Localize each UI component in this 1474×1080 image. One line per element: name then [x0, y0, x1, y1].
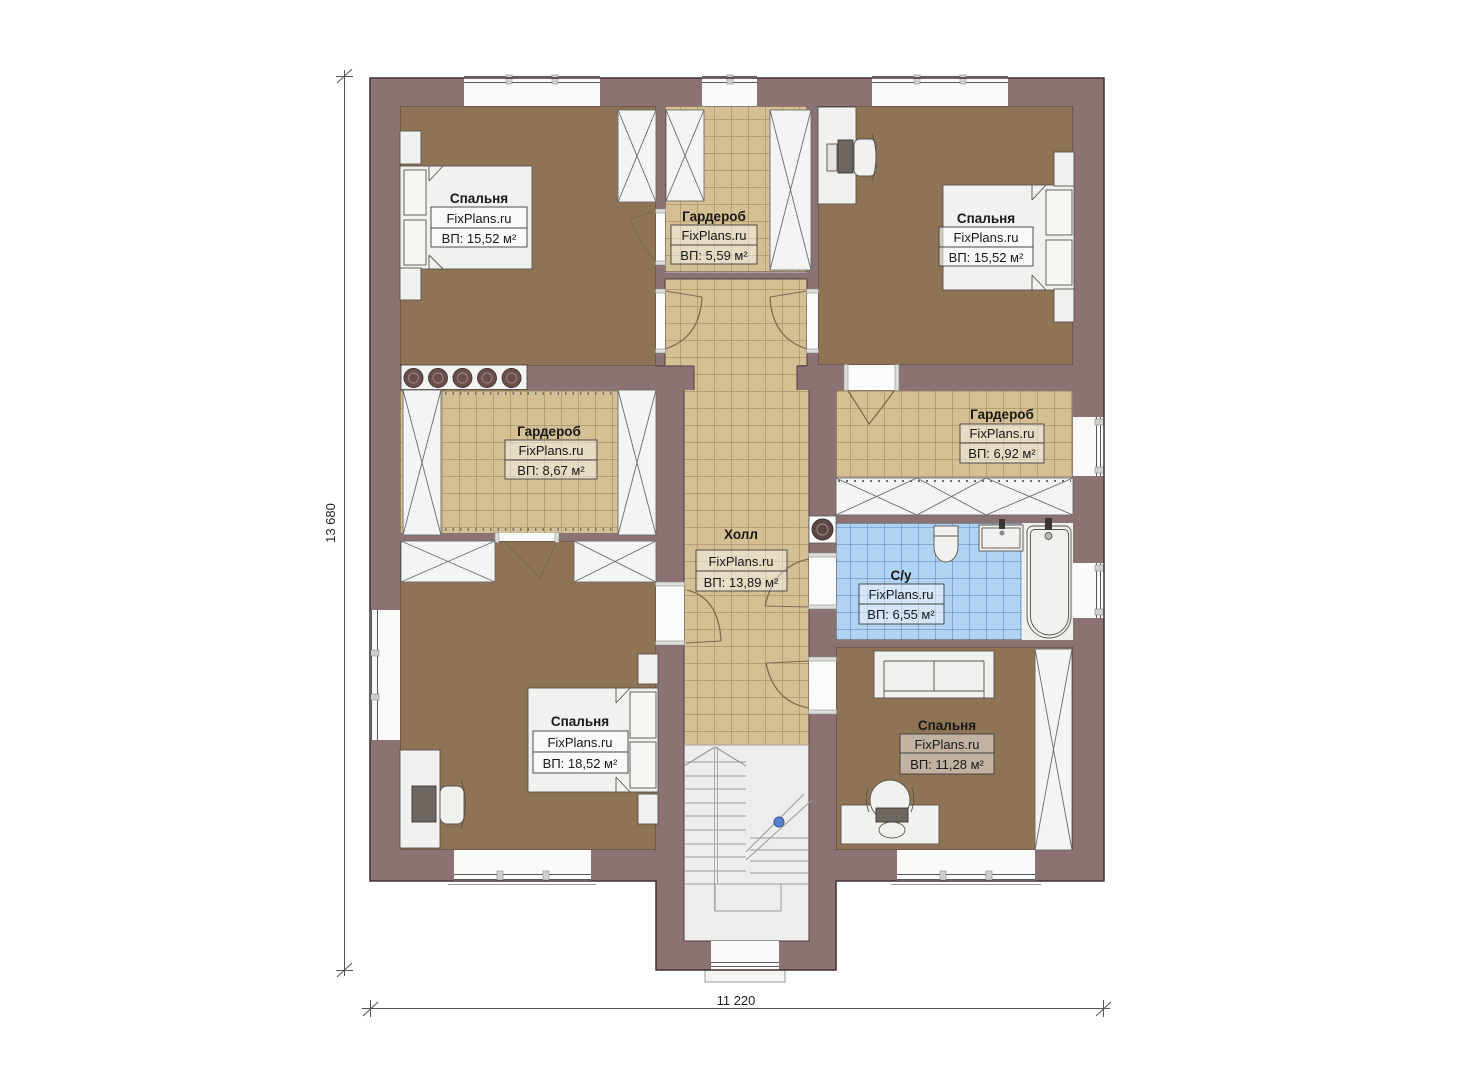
svg-text:FixPlans.ru: FixPlans.ru — [547, 735, 612, 750]
svg-text:FixPlans.ru: FixPlans.ru — [914, 737, 979, 752]
svg-text:Гардероб: Гардероб — [682, 209, 746, 224]
svg-text:Холл: Холл — [724, 527, 758, 542]
svg-text:FixPlans.ru: FixPlans.ru — [969, 426, 1034, 441]
svg-text:ВП: 5,59 м²: ВП: 5,59 м² — [680, 248, 748, 263]
svg-text:FixPlans.ru: FixPlans.ru — [446, 211, 511, 226]
svg-text:Спальня: Спальня — [957, 211, 1015, 226]
svg-text:Гардероб: Гардероб — [970, 407, 1034, 422]
svg-text:13 680: 13 680 — [323, 503, 338, 543]
svg-text:FixPlans.ru: FixPlans.ru — [868, 587, 933, 602]
svg-text:FixPlans.ru: FixPlans.ru — [953, 230, 1018, 245]
svg-text:Гардероб: Гардероб — [517, 424, 581, 439]
svg-text:ВП: 8,67 м²: ВП: 8,67 м² — [517, 463, 585, 478]
svg-text:Спальня: Спальня — [450, 191, 508, 206]
svg-text:ВП: 15,52 м²: ВП: 15,52 м² — [949, 250, 1024, 265]
svg-text:Спальня: Спальня — [918, 718, 976, 733]
svg-text:11 220: 11 220 — [717, 993, 756, 1008]
svg-text:ВП: 15,52 м²: ВП: 15,52 м² — [442, 231, 517, 246]
svg-text:Спальня: Спальня — [551, 714, 609, 729]
svg-text:ВП: 13,89 м²: ВП: 13,89 м² — [704, 575, 779, 590]
svg-text:ВП: 18,52 м²: ВП: 18,52 м² — [543, 756, 618, 771]
svg-text:ВП: 11,28 м²: ВП: 11,28 м² — [910, 757, 984, 772]
svg-text:FixPlans.ru: FixPlans.ru — [681, 228, 746, 243]
svg-text:ВП: 6,92 м²: ВП: 6,92 м² — [968, 446, 1036, 461]
svg-text:ВП: 6,55 м²: ВП: 6,55 м² — [867, 607, 935, 622]
svg-text:FixPlans.ru: FixPlans.ru — [708, 554, 773, 569]
svg-text:С/у: С/у — [890, 568, 912, 583]
svg-text:FixPlans.ru: FixPlans.ru — [518, 443, 583, 458]
